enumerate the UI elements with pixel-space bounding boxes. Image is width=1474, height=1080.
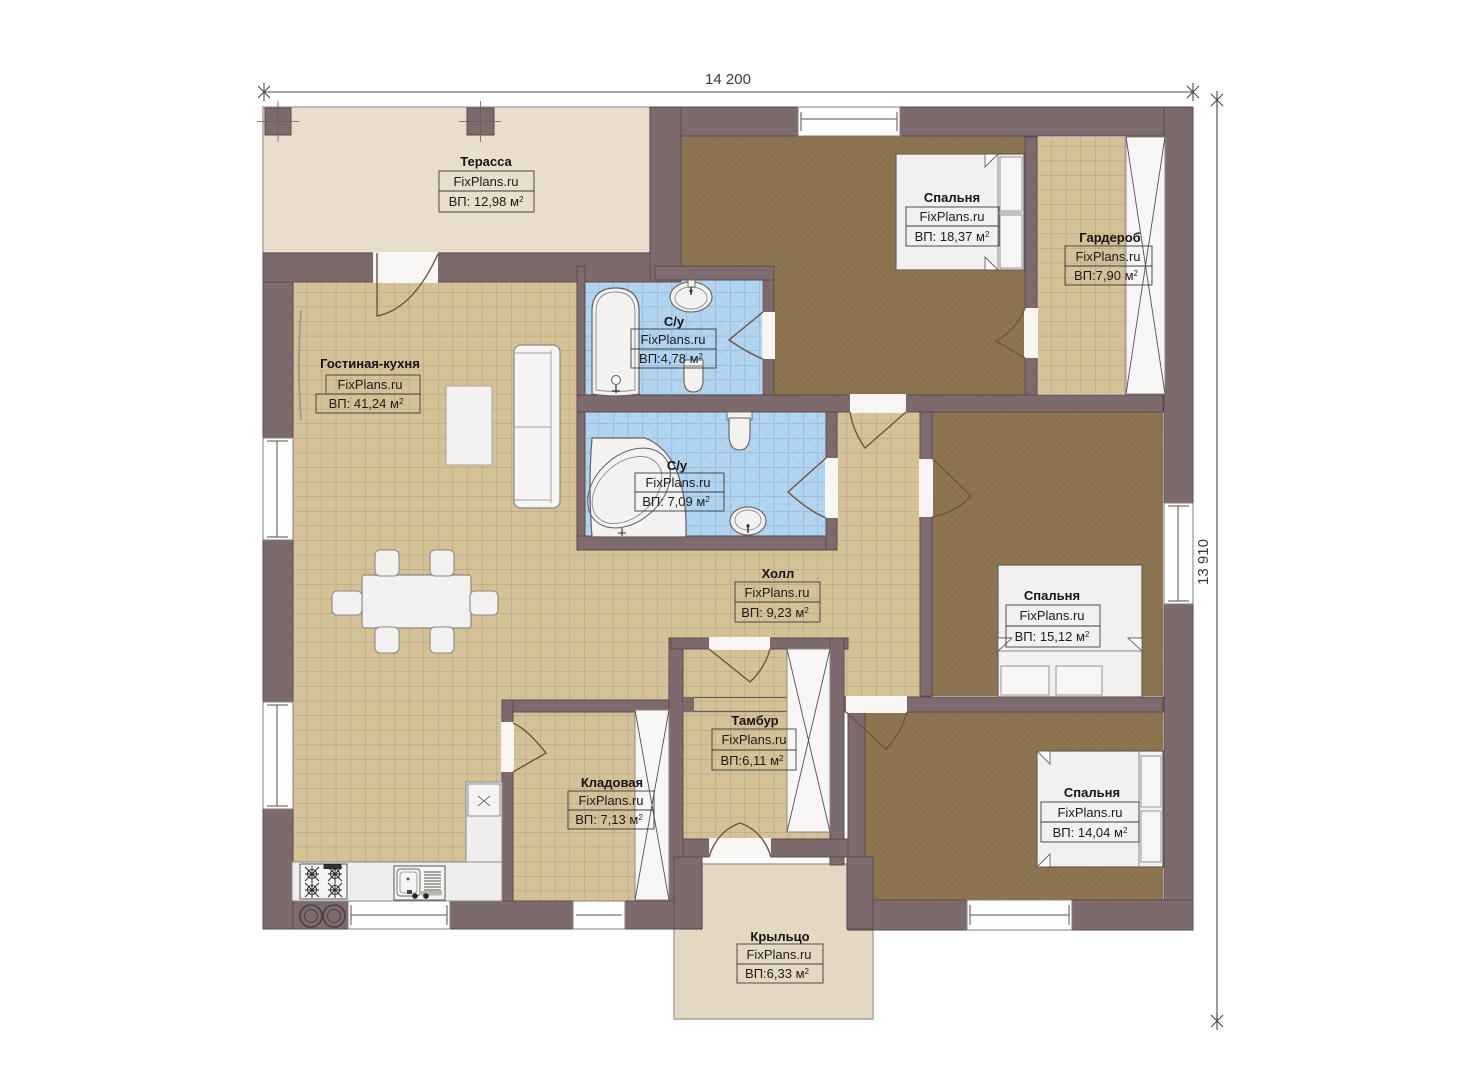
svg-text:Терасса: Терасса [460,154,512,169]
svg-text:ВП: 7,13 м2: ВП: 7,13 м2 [575,812,643,827]
svg-text:FixPlans.ru: FixPlans.ru [746,947,811,962]
svg-text:ВП:7,90 м2: ВП:7,90 м2 [1074,268,1138,283]
svg-text:Спальня: Спальня [924,190,980,205]
svg-text:ВП:6,33 м2: ВП:6,33 м2 [745,966,809,981]
svg-text:FixPlans.ru: FixPlans.ru [919,209,984,224]
svg-text:ВП:6,11 м2: ВП:6,11 м2 [721,753,785,768]
svg-text:Тамбур: Тамбур [731,713,778,728]
svg-text:FixPlans.ru: FixPlans.ru [640,332,705,347]
svg-text:FixPlans.ru: FixPlans.ru [1019,608,1084,623]
svg-text:ВП: 15,12 м2: ВП: 15,12 м2 [1015,629,1090,644]
svg-text:Холл: Холл [762,566,795,581]
svg-text:ВП: 12,98 м2: ВП: 12,98 м2 [449,194,524,209]
svg-text:Спальня: Спальня [1064,785,1120,800]
svg-text:FixPlans.ru: FixPlans.ru [645,475,710,490]
svg-text:Гостиная-кухня: Гостиная-кухня [320,356,420,371]
svg-text:Гардероб: Гардероб [1079,230,1140,245]
svg-text:FixPlans.ru: FixPlans.ru [1075,249,1140,264]
svg-text:Крыльцо: Крыльцо [750,929,809,944]
svg-text:ВП: 14,04 м2: ВП: 14,04 м2 [1053,825,1128,840]
svg-text:FixPlans.ru: FixPlans.ru [744,585,809,600]
svg-text:ВП: 7,09 м2: ВП: 7,09 м2 [642,494,710,509]
svg-text:ВП: 41,24 м2: ВП: 41,24 м2 [329,396,404,411]
svg-text:FixPlans.ru: FixPlans.ru [721,732,786,747]
svg-text:ВП: 9,23 м2: ВП: 9,23 м2 [741,605,809,620]
svg-text:13 910: 13 910 [1195,539,1212,585]
svg-text:14 200: 14 200 [705,71,751,88]
svg-text:ВП:4,78 м2: ВП:4,78 м2 [639,351,703,366]
svg-text:FixPlans.ru: FixPlans.ru [1057,805,1122,820]
svg-text:С/у: С/у [667,458,688,473]
svg-text:ВП: 18,37 м2: ВП: 18,37 м2 [915,229,990,244]
svg-text:Кладовая: Кладовая [581,775,643,790]
svg-text:FixPlans.ru: FixPlans.ru [578,793,643,808]
svg-text:FixPlans.ru: FixPlans.ru [337,377,402,392]
svg-text:С/у: С/у [664,314,685,329]
svg-text:FixPlans.ru: FixPlans.ru [453,174,518,189]
svg-text:Спальня: Спальня [1024,588,1080,603]
